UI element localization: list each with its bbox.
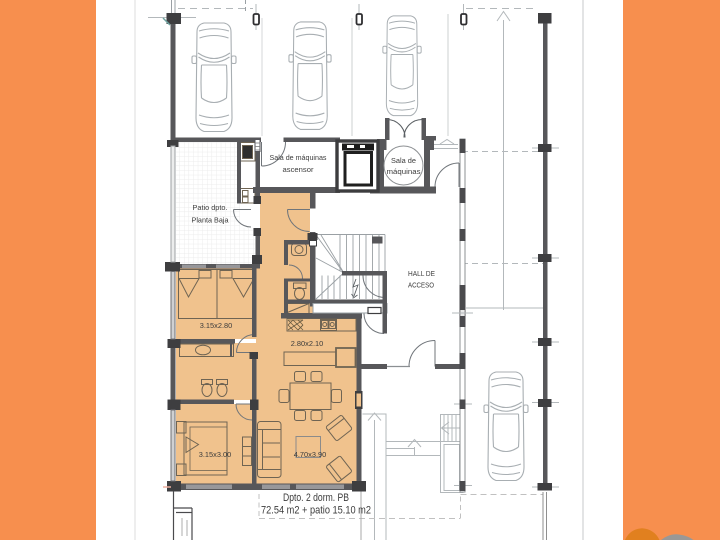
svg-text:máquinas: máquinas: [387, 169, 422, 176]
svg-text:4.70x3.90: 4.70x3.90: [294, 450, 326, 459]
svg-text:Dpto. 2 dorm. PB: Dpto. 2 dorm. PB: [283, 492, 349, 504]
svg-text:72.54 m2 + patio 15.10 m2: 72.54 m2 + patio 15.10 m2: [261, 505, 371, 517]
svg-text:2.80x2.10: 2.80x2.10: [291, 339, 323, 348]
svg-text:Patio dpto.: Patio dpto.: [193, 203, 228, 212]
svg-text:HALL DE: HALL DE: [408, 269, 435, 278]
svg-text:3.15x3.00: 3.15x3.00: [199, 450, 231, 459]
svg-text:Sala de máquinas: Sala de máquinas: [270, 153, 327, 162]
svg-text:Planta Baja: Planta Baja: [192, 216, 230, 225]
svg-text:ascensor: ascensor: [283, 165, 315, 174]
svg-text:Sala de: Sala de: [391, 158, 416, 165]
svg-text:ACCESO: ACCESO: [408, 281, 434, 290]
svg-text:3.15x2.80: 3.15x2.80: [200, 321, 232, 330]
